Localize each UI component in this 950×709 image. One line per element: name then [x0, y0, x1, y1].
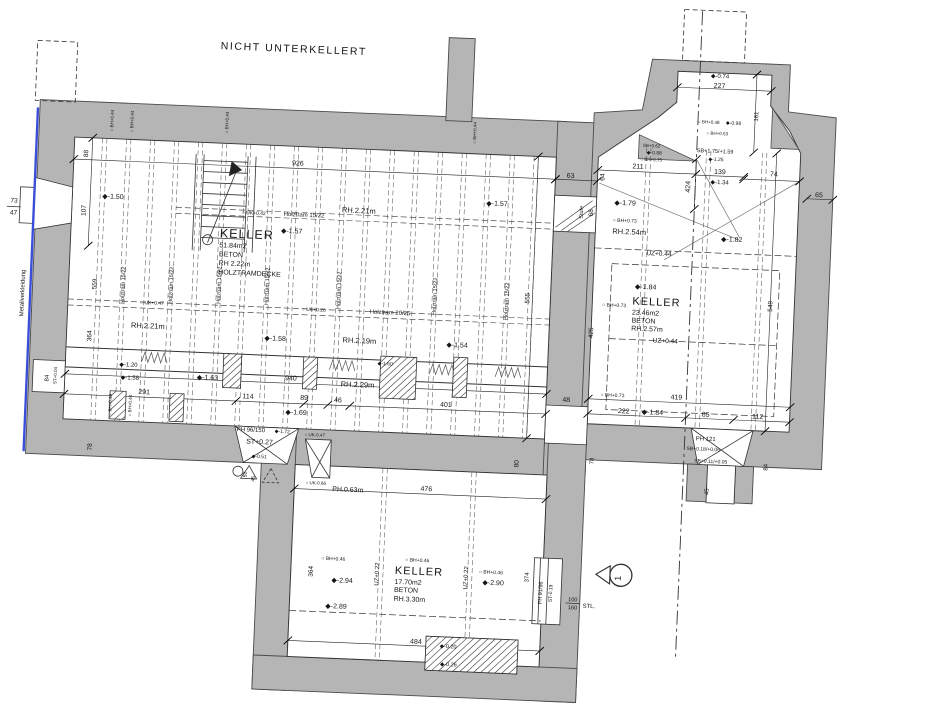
sb-062: SB+0.62	[643, 143, 661, 149]
dim-291: 291	[138, 389, 150, 396]
keller2-height: RH.2.57m	[631, 326, 663, 334]
spot-1-20: ◆-1.20	[119, 362, 138, 369]
bh-048-b1: ○ BH+0.48	[107, 393, 113, 415]
chimney	[446, 38, 475, 122]
spot-2-89: ◆-2.89	[325, 603, 347, 611]
spot-1-84b: ◆-1.84	[642, 409, 664, 417]
stufe-label: Stufe	[579, 206, 586, 219]
drain-circle	[233, 466, 243, 476]
dim-64: 64	[599, 173, 606, 181]
dim-364-b: 364	[308, 565, 315, 577]
bh-046-c: ○ BH+0.46	[479, 569, 503, 576]
dim-227: 227	[713, 83, 725, 90]
uz-022-b: UZ+0.22	[463, 565, 470, 589]
dim-161: 161	[754, 111, 760, 122]
dim-78-left: 78	[87, 443, 94, 451]
dim-85: 85	[702, 412, 710, 419]
bh-044-t1: ○ BH+0.44	[109, 109, 115, 131]
dim-65: 65	[815, 192, 823, 199]
dim-549: 549	[767, 300, 774, 312]
dim-50: 50	[243, 471, 249, 477]
uz-044-a: UZ+0.44	[646, 250, 672, 258]
keller2-area: 23.46m2	[632, 310, 660, 318]
rh-221-left: RH.2.21m	[131, 321, 165, 331]
metallverkleidung-label: Metallverkleidung	[19, 270, 27, 317]
dim-401: 401	[440, 402, 452, 409]
uk-047: ○ UK+0.47	[140, 300, 164, 307]
uk-066: ○ UK-0.66	[305, 480, 326, 486]
dim-424: 424	[685, 181, 692, 193]
spot-1-25: ◆-1.25	[708, 157, 724, 164]
dim-419: 419	[670, 394, 682, 401]
window-niche-left	[33, 177, 73, 231]
rh-229: RH.2.29m	[340, 379, 374, 389]
uk-047-b: ○ UK-0.47	[304, 432, 325, 438]
bh-044-t3: ○ BH+0.44	[224, 111, 230, 133]
middle-wall-opening	[544, 405, 588, 445]
dim-555: 555	[524, 292, 531, 304]
dim-107: 107	[80, 205, 87, 217]
floor-plan-basement: NICHT UNTERKELLERT7347Metallverkleidung8…	[0, 0, 950, 709]
bh-075: ○ BH+0.75	[640, 157, 662, 163]
keller3-material: BETON	[394, 587, 418, 595]
dim-112: 112	[752, 414, 764, 421]
rh-219: RH.2.19m	[342, 335, 376, 345]
spot-1-34: ◆-1.34	[710, 180, 729, 187]
bh-044-t2: ○ BH+0.44	[129, 110, 135, 132]
bh-044-b2: ○ BH+0.44	[127, 394, 133, 416]
ph-91-96: PH 91/96	[538, 581, 545, 604]
spot-0-88: ◆-0.88	[646, 150, 662, 157]
dim-84-r: 84	[763, 463, 769, 471]
dim-46: 46	[334, 397, 342, 404]
plan-title: NICHT UNTERKELLERT	[220, 40, 367, 58]
keller3-name: KELLER	[395, 565, 444, 579]
spot-1-60: ◆-1.60	[377, 361, 393, 368]
spot-0-20: ◆-0.20	[440, 644, 457, 651]
dim-45b: 45	[251, 476, 257, 482]
dim-114: 114	[242, 393, 254, 400]
dim-74: 74	[770, 171, 778, 178]
dim-89: 89	[300, 395, 308, 402]
stl-label: STL.	[582, 604, 595, 611]
dim-48: 48	[562, 397, 570, 404]
bh-073-a: ○ BH+0.73	[613, 218, 637, 225]
spot-1-57a: ◆-1.57	[281, 228, 303, 236]
keller1-name: KELLER	[220, 226, 274, 242]
spot-1-82: ◆-1.82	[721, 236, 743, 244]
dim-100: 100	[568, 597, 577, 603]
spot-1-54: ◆-1.54	[446, 342, 468, 350]
spot-1-58b: ◆-1.58	[121, 375, 140, 382]
dim-940: 940	[285, 375, 297, 382]
dim-559: 559	[91, 278, 98, 290]
section-marker-circle	[609, 564, 632, 587]
rh-254: RH.2.54m	[612, 227, 646, 237]
dim-47: 47	[10, 209, 18, 216]
dim-78-r: 78	[590, 457, 596, 465]
keller2-name: KELLER	[632, 296, 681, 310]
bh-073-b: ○ BH+0.73	[602, 302, 626, 309]
dim-139: 139	[714, 169, 726, 176]
dim-68: 68	[588, 209, 595, 217]
spot-1-63: ◆-1.63	[197, 374, 219, 382]
spot-2-90: ◆-2.90	[482, 580, 504, 588]
st-019: ST-0.19	[548, 584, 555, 602]
bh-073-c: ○ BH+0.73	[600, 392, 624, 399]
spot-1-84a: ◆-1.84	[635, 284, 657, 292]
spot-0-26: ◆-0.26	[440, 662, 457, 669]
spot-1-69: ◆-1.69	[285, 409, 307, 417]
ph121-shaft	[706, 465, 736, 504]
shaft-stub-right	[734, 466, 754, 504]
st-004: ST+0.04	[52, 366, 58, 384]
keller1-material: BETON	[219, 251, 243, 259]
dim-222: 222	[618, 408, 630, 415]
keller2-material: BETON	[631, 318, 655, 326]
spot-1-50: ◆-1.50	[102, 193, 124, 201]
dim-45: 45	[704, 488, 710, 496]
keller3-height: RH.3.30m	[394, 596, 426, 604]
dim-84-niche: 84	[45, 374, 51, 382]
section-marker-arrow	[596, 565, 611, 584]
spot-0-51: ◆-0.51	[251, 454, 267, 461]
uk-042: ○ UK+0.42	[242, 210, 266, 217]
spot-2-94: ◆-2.94	[331, 577, 353, 585]
dim-63: 63	[567, 173, 575, 180]
keller1-area: 51.84m2	[219, 242, 247, 250]
dim-484: 484	[410, 639, 422, 646]
dim-364-left: 364	[86, 330, 93, 342]
keller3-area: 17.70m2	[394, 579, 422, 587]
dim-425: 425	[588, 327, 595, 339]
spot-1-72: ◆-1.72	[274, 429, 290, 436]
chimney-dashed-outline	[35, 40, 77, 102]
spot-1-57b: ◆-1.57	[486, 200, 508, 208]
uz-044-b: UZ+0.44	[653, 337, 679, 345]
spot-0-98: ◆-0.98	[726, 120, 742, 127]
rh-221-top: RH.2.21m	[342, 205, 376, 215]
upper-storey-dashed-outline	[683, 9, 747, 63]
spot-0-74: ◆-0.74	[711, 74, 730, 81]
dim-88: 88	[83, 149, 90, 157]
uz-022-a: UZ+0.22	[374, 562, 381, 586]
dim-160: 160	[568, 605, 577, 611]
spot-1-58a: ◆-1.58	[264, 335, 286, 343]
dim-926: 926	[292, 160, 304, 167]
dim-374: 374	[525, 572, 531, 583]
shaft-stub-left	[686, 464, 708, 502]
ph-121: PH 121	[696, 436, 717, 443]
spot-1-79: ◆-1.79	[614, 200, 636, 208]
st-027: ST+0.27	[246, 438, 273, 446]
section-number: 1	[613, 575, 623, 580]
bh-048-bay: ○ BH+0.48	[698, 119, 720, 125]
ph-96-150: PH 96/150	[237, 427, 266, 434]
dim-211: 211	[632, 163, 644, 170]
plan-drawing: NICHT UNTERKELLERT7347Metallverkleidung8…	[0, 0, 950, 709]
uk-026: ○ UK+0.26	[302, 307, 326, 314]
bh-053: ○ BH+0.53	[706, 131, 728, 137]
ph-063: PH.0.63m	[332, 486, 364, 494]
keller1-interior	[63, 137, 556, 439]
dim-476: 476	[420, 486, 432, 493]
dim-73: 73	[10, 197, 18, 204]
bh-046-a: ○ BH+0.46	[321, 556, 345, 563]
bh-046-b: ○ BH+0.46	[405, 557, 429, 564]
bh-044-t4: ○ BH+0.44	[472, 121, 478, 143]
dim-80: 80	[513, 460, 520, 468]
